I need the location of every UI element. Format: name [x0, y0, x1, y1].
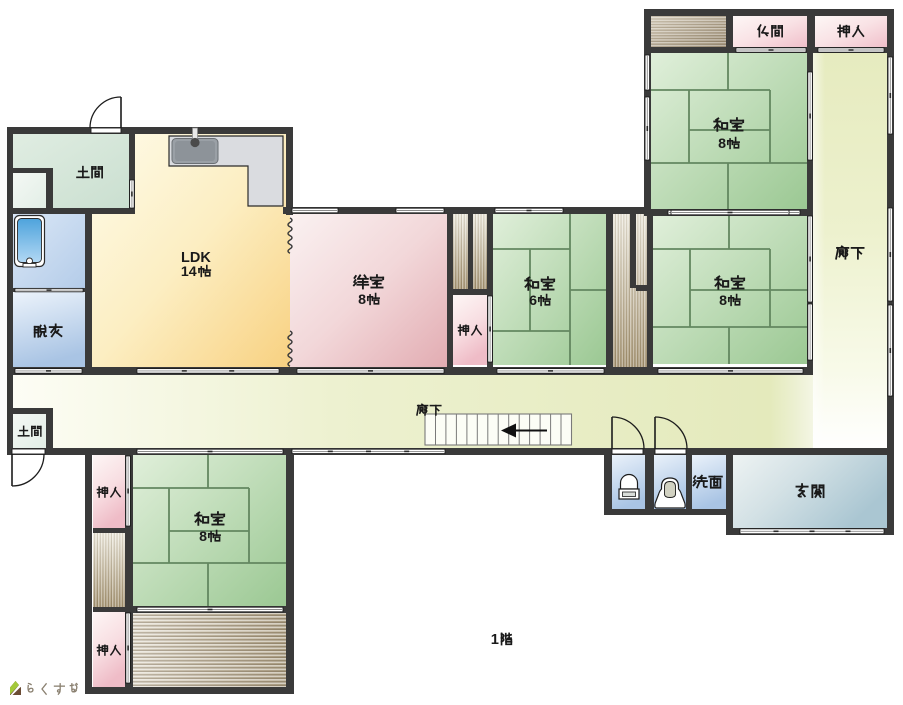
- svg-text:8: 8: [358, 292, 366, 308]
- svg-text:6: 6: [529, 293, 537, 309]
- svg-text:8: 8: [719, 293, 727, 309]
- svg-text:8: 8: [199, 529, 207, 545]
- svg-text:1: 1: [491, 632, 499, 648]
- svg-text:14: 14: [181, 264, 197, 280]
- svg-text:8: 8: [718, 136, 726, 152]
